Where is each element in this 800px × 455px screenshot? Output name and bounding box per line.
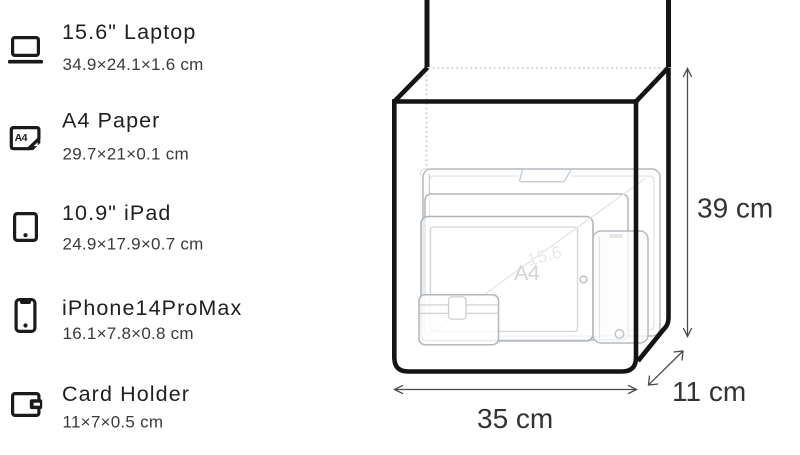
svg-text:iPhone14ProMax: iPhone14ProMax [62,296,242,320]
svg-text:34.9×24.1×1.6 cm: 34.9×24.1×1.6 cm [63,55,204,74]
svg-text:39 cm: 39 cm [697,193,773,224]
svg-text:A4 Paper: A4 Paper [62,109,160,133]
svg-text:A4: A4 [15,132,28,144]
svg-text:15.6" Laptop: 15.6" Laptop [62,20,196,44]
svg-text:11×7×0.5 cm: 11×7×0.5 cm [63,412,164,431]
svg-text:11 cm: 11 cm [672,376,746,407]
svg-text:16.1×7.8×0.8 cm: 16.1×7.8×0.8 cm [63,324,194,343]
svg-text:29.7×21×0.1 cm: 29.7×21×0.1 cm [63,145,189,164]
svg-text:Card Holder: Card Holder [62,382,190,406]
svg-text:35 cm: 35 cm [477,403,553,434]
svg-text:10.9" iPad: 10.9" iPad [62,201,171,225]
svg-text:24.9×17.9×0.7 cm: 24.9×17.9×0.7 cm [63,234,204,253]
svg-text:A4: A4 [514,261,540,285]
